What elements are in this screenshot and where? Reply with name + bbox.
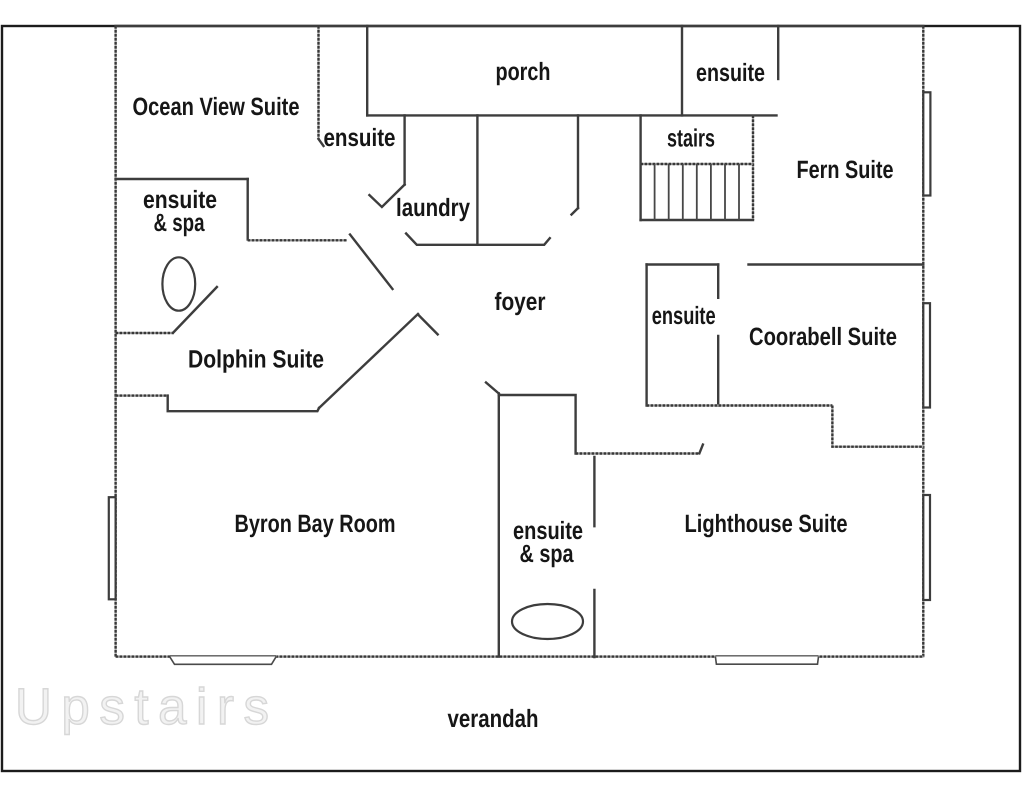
svg-text:foyer: foyer [495,288,546,316]
svg-text:ensuite: ensuite [652,302,716,330]
svg-text:& spa: & spa [520,540,575,568]
svg-text:laundry: laundry [396,194,470,222]
svg-text:Coorabell Suite: Coorabell Suite [749,323,897,351]
svg-text:Byron Bay Room: Byron Bay Room [235,510,396,538]
svg-text:ensuite: ensuite [696,59,765,87]
svg-text:& spa: & spa [154,209,206,237]
svg-text:verandah: verandah [448,705,539,733]
svg-text:Dolphin Suite: Dolphin Suite [188,346,324,374]
svg-text:ensuite: ensuite [324,124,396,152]
svg-text:stairs: stairs [667,125,715,153]
svg-text:porch: porch [496,58,551,86]
svg-text:Lighthouse Suite: Lighthouse Suite [685,510,848,538]
svg-text:Ocean View Suite: Ocean View Suite [133,93,300,121]
svg-text:Fern Suite: Fern Suite [797,156,894,184]
